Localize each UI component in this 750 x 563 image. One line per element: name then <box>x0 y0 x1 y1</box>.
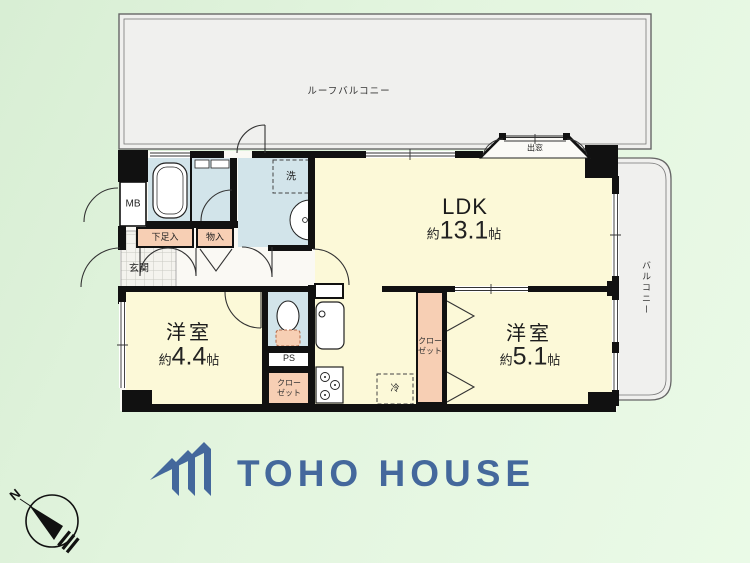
toho-house-logo-text: TOHO HOUSE <box>237 453 535 495</box>
entrance-door-arc <box>81 248 120 287</box>
kitchen-sink <box>316 302 344 349</box>
storage-label: 物入 <box>206 233 224 243</box>
kitchen-cupboard <box>315 284 343 298</box>
window-right-51b <box>612 353 619 390</box>
mb-door-arc <box>84 188 118 222</box>
laundry-label: 洗 <box>286 172 296 183</box>
roof-balcony-label: ルーフバルコニー <box>307 87 390 97</box>
room51-area-unit: 帖 <box>547 353 560 367</box>
window-top-bath <box>150 151 190 158</box>
room44-area: 約4.4帖 <box>159 343 220 371</box>
toilet <box>277 301 299 331</box>
room44-area-value: 4.4 <box>172 343 207 371</box>
closet-44-label: クロー ゼット <box>277 378 301 397</box>
bathtub <box>153 163 187 218</box>
ldk-area-value: 13.1 <box>440 217 489 245</box>
room44-area-approx: 約 <box>159 353 172 367</box>
shoe-box-label: 下足入 <box>151 233 178 243</box>
wall-block <box>118 150 148 182</box>
ldk-area-unit: 帖 <box>488 227 501 241</box>
floorplan-page: N ルーフバルコニー 出窓 LDK 約13.1帖 洋室 約4.4帖 洋室 約5.… <box>0 0 750 563</box>
meter-box-label: MB <box>126 199 141 210</box>
bath-shelf <box>195 160 209 168</box>
entrance-label: 玄関 <box>129 264 149 275</box>
closet-51-label: クロー ゼット <box>418 336 442 355</box>
room44-name: 洋室 <box>166 322 212 344</box>
closet-51-line2: ゼット <box>418 346 442 356</box>
bay-window-label: 出窓 <box>527 145 543 154</box>
window-right-51a <box>612 300 619 342</box>
room51-area-approx: 約 <box>500 353 513 367</box>
refrigerator-label: 冷 <box>390 384 399 394</box>
ldk-area-approx: 約 <box>427 227 440 241</box>
compass-icon: N <box>7 486 79 553</box>
roof-balcony <box>119 14 651 149</box>
closet-44-line2: ゼット <box>277 388 301 398</box>
closet-44-line1: クロー <box>277 378 301 388</box>
pipe-space-label: PS <box>283 354 295 364</box>
room51-area-value: 5.1 <box>513 343 548 371</box>
ldk-area: 約13.1帖 <box>427 217 502 245</box>
toho-house-logo-icon <box>150 442 211 496</box>
closet-51-line1: クロー <box>418 336 442 346</box>
room51-area: 約5.1帖 <box>500 343 561 371</box>
compass-north-label: N <box>7 486 24 504</box>
room44-area-unit: 帖 <box>206 353 219 367</box>
side-balcony-label: バルコニー <box>640 261 650 316</box>
